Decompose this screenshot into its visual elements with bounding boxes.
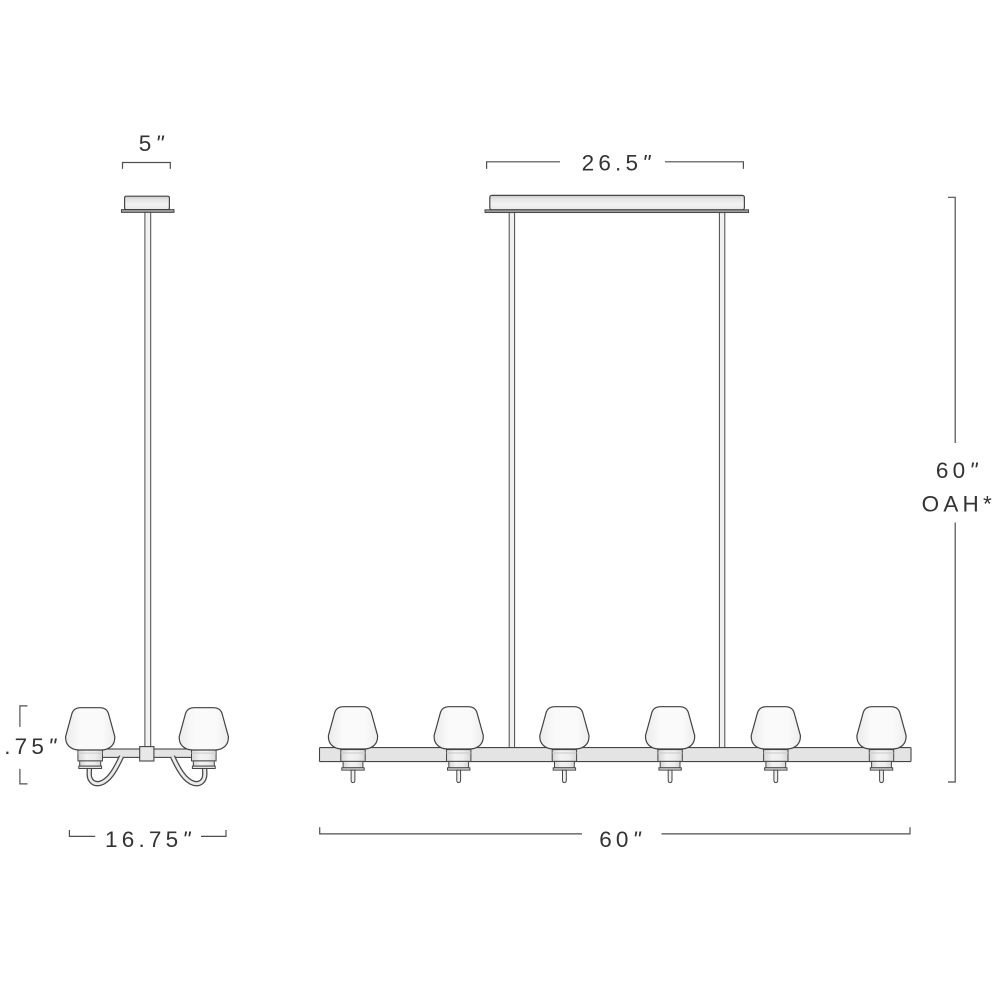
svg-text:16.75": 16.75" <box>105 827 195 852</box>
svg-text:26.5": 26.5" <box>582 150 655 175</box>
svg-text:7.75": 7.75" <box>0 734 60 759</box>
svg-text:5": 5" <box>139 131 168 156</box>
svg-text:OAH*: OAH* <box>922 492 996 517</box>
svg-text:60": 60" <box>936 458 982 483</box>
svg-text:60": 60" <box>599 827 645 852</box>
